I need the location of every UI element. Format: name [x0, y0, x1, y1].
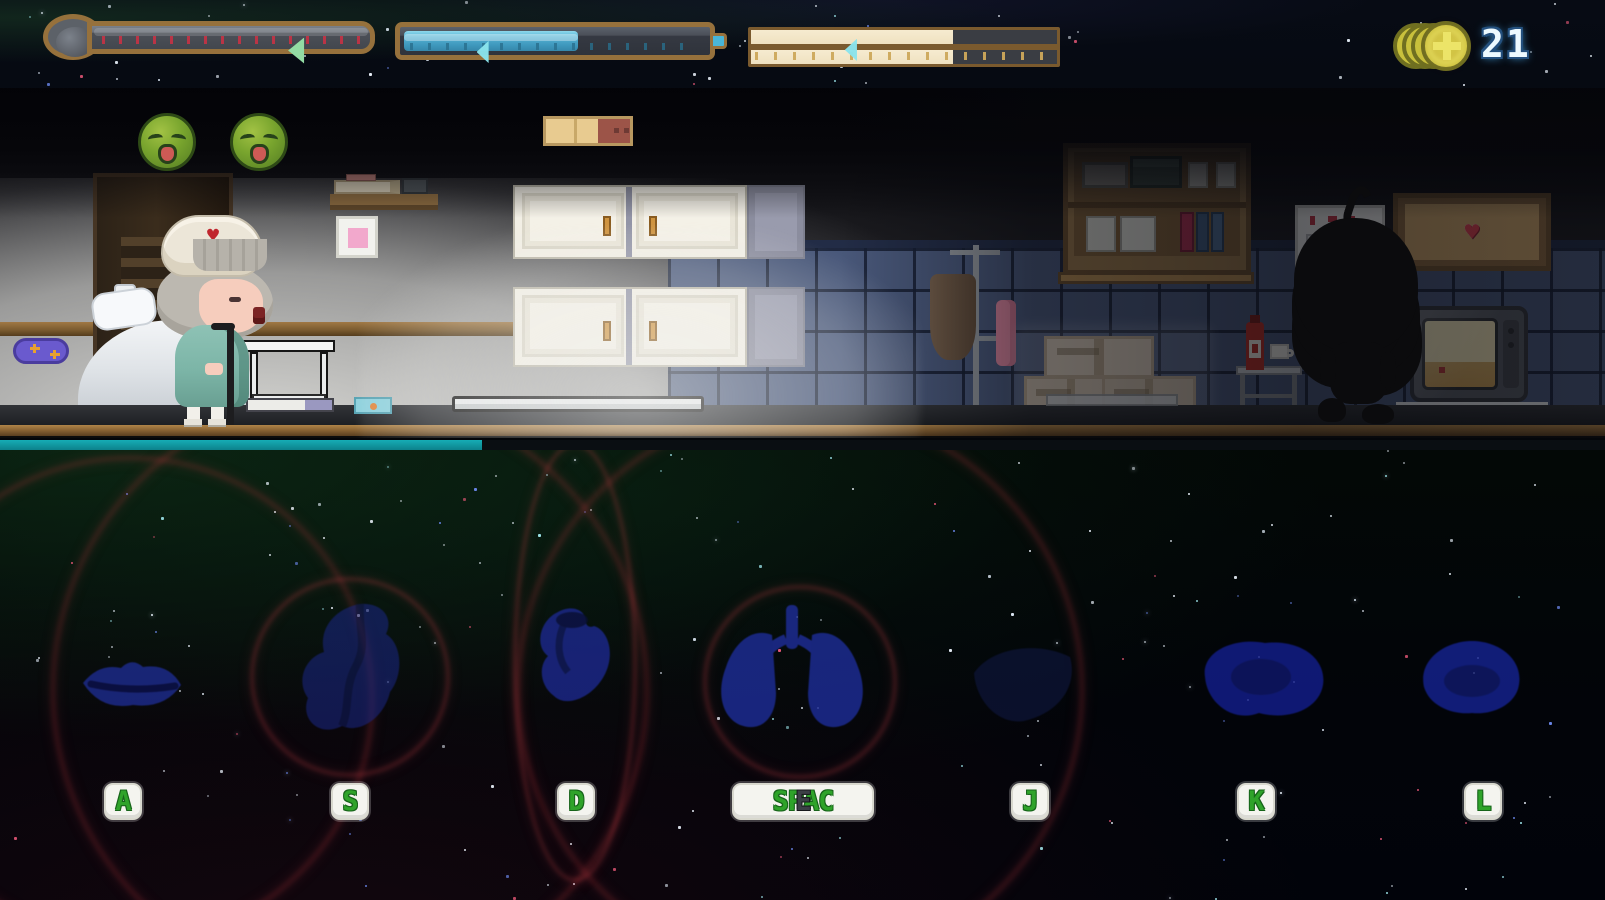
star: [1465, 822, 1467, 824]
star: [386, 28, 389, 31]
key-label-dim: E: [795, 786, 810, 817]
star: [1557, 606, 1560, 609]
stomach-icon: [528, 602, 620, 714]
sick-face-emote-icon: [138, 113, 196, 171]
star: [1068, 36, 1071, 39]
shadow-arm: [1380, 352, 1396, 388]
key-prompt-s[interactable]: S: [331, 783, 369, 820]
star: [1380, 838, 1382, 840]
star: [1188, 493, 1190, 495]
liver-icon: [966, 635, 1081, 727]
star: [158, 79, 160, 81]
star: [1417, 789, 1419, 791]
right-shadow: [840, 88, 1605, 438]
key-label: D: [568, 786, 583, 817]
star: [693, 73, 696, 76]
star: [1262, 530, 1265, 533]
stage-progress-bar: [0, 438, 1605, 450]
star: [1132, 467, 1135, 470]
shadow-arm: [1320, 350, 1336, 386]
coin-count: 21: [1481, 22, 1531, 66]
star: [1405, 655, 1408, 658]
star: [998, 15, 1000, 17]
stage-progress-fill: [0, 440, 482, 450]
grandma-hand: [205, 363, 223, 375]
key-label: J: [1022, 786, 1037, 817]
grandma-bangs: [193, 239, 267, 271]
key-label: L: [1475, 786, 1490, 817]
coin-counter: 21: [1393, 18, 1603, 74]
star: [1144, 641, 1146, 643]
shadow-foot: [1318, 398, 1346, 422]
star: [1450, 539, 1453, 542]
star: [1524, 802, 1526, 804]
star: [1280, 792, 1282, 794]
star: [1263, 836, 1265, 838]
star: [1385, 475, 1387, 477]
star: [1154, 575, 1156, 577]
hud-bar: 21: [0, 0, 1605, 88]
game-screen: 21: [0, 0, 1605, 900]
star: [815, 5, 817, 7]
syringe-body: [395, 22, 715, 60]
star: [1463, 84, 1465, 86]
ruler-divider: [751, 44, 1057, 50]
syringe-fill-highlight: [404, 34, 578, 41]
key-prompt-a[interactable]: A: [104, 783, 142, 820]
star: [1163, 645, 1165, 647]
thermometer-tube: [87, 21, 375, 54]
star: [708, 77, 711, 80]
star: [1223, 859, 1225, 861]
syringe-ticks: [410, 43, 694, 50]
grandma-character: ♥: [153, 215, 285, 429]
grandma-shoe: [184, 419, 202, 427]
star: [1170, 540, 1172, 542]
star: [1077, 31, 1079, 33]
thermometer-highlight: [94, 28, 368, 36]
wall-sign: [543, 116, 633, 146]
star: [1226, 839, 1228, 841]
star: [1513, 817, 1515, 819]
grandma-eye: [229, 297, 241, 302]
star: [1109, 820, 1111, 822]
star: [1122, 658, 1124, 660]
syringe-tip: [713, 33, 727, 49]
sick-face-emote-icon: [230, 113, 288, 171]
star: [1339, 76, 1342, 79]
ruler-fill-top: [751, 30, 953, 44]
star: [465, 1, 468, 4]
organ-space-panel: A S D SPACE J K L: [0, 450, 1605, 900]
star: [47, 83, 50, 86]
star: [1387, 450, 1389, 452]
star: [1386, 892, 1388, 894]
star: [387, 67, 389, 69]
star: [1354, 599, 1356, 601]
star: [1089, 530, 1091, 532]
star: [1237, 595, 1239, 597]
star: [693, 83, 695, 85]
star: [1074, 40, 1077, 43]
lungs-icon: [706, 605, 878, 733]
star: [1169, 897, 1171, 899]
star: [1534, 484, 1536, 486]
star: [834, 80, 836, 82]
shadow-foot: [1362, 404, 1394, 424]
star: [1234, 576, 1237, 579]
star: [834, 15, 836, 17]
star: [1502, 876, 1504, 878]
thermometer-ticks: [102, 36, 362, 44]
key-prompt-j[interactable]: J: [1011, 783, 1049, 820]
star: [80, 75, 83, 78]
star: [1196, 600, 1198, 602]
key-label: S: [342, 786, 357, 817]
star: [1173, 595, 1175, 597]
star: [865, 82, 867, 84]
star: [1554, 3, 1556, 5]
room-scene: ♥ ♥ ♥ ♥: [0, 88, 1605, 438]
star: [38, 72, 40, 74]
star: [1549, 722, 1552, 725]
star: [1322, 729, 1324, 731]
grandma-mouth: [253, 307, 265, 324]
coin-plus-horizontal: [1433, 42, 1461, 50]
star: [1549, 796, 1551, 798]
star: [1520, 822, 1522, 824]
key-prompt-k[interactable]: K: [1237, 783, 1275, 820]
star: [1111, 822, 1113, 824]
star: [1465, 888, 1467, 890]
star: [739, 45, 741, 47]
star: [1347, 39, 1350, 42]
star: [243, 4, 245, 6]
star: [744, 40, 746, 42]
star: [1391, 885, 1393, 887]
ruler-ticks: [755, 52, 1055, 60]
star: [1091, 601, 1094, 604]
star: [1330, 515, 1332, 517]
star: [1362, 610, 1364, 612]
star: [369, 73, 372, 76]
lips-icon: [77, 653, 187, 717]
star: [108, 5, 111, 8]
bladder-icon: [1414, 635, 1530, 719]
coin-plus-icon: [1421, 21, 1471, 71]
light-beam-fog: [360, 228, 920, 438]
shadow-head: [1294, 218, 1418, 352]
thermometer-gauge: [43, 12, 377, 62]
key-prompt-l[interactable]: L: [1464, 783, 1502, 820]
key-prompt-d[interactable]: D: [557, 783, 595, 820]
star: [1018, 462, 1020, 464]
star: [1040, 847, 1043, 850]
kidney-icon: [1183, 633, 1331, 723]
star: [1290, 602, 1292, 604]
key-label: A: [115, 786, 130, 817]
key-label: K: [1248, 786, 1263, 817]
grandma-shoe: [208, 419, 226, 427]
star: [1403, 462, 1405, 464]
star: [116, 78, 118, 80]
star: [1271, 524, 1273, 526]
star: [29, 16, 31, 18]
purple-pouch: [13, 338, 69, 364]
shadow-character: [1286, 190, 1428, 424]
syringe-gauge: [395, 22, 727, 60]
star: [1449, 573, 1451, 575]
key-prompt-space[interactable]: SPACE: [732, 783, 874, 820]
ruler-gauge: [748, 27, 1060, 67]
star: [216, 75, 219, 78]
star: [1518, 596, 1520, 598]
star: [1146, 612, 1148, 614]
cane: [227, 329, 234, 425]
stomach-tube-icon: [298, 600, 413, 748]
